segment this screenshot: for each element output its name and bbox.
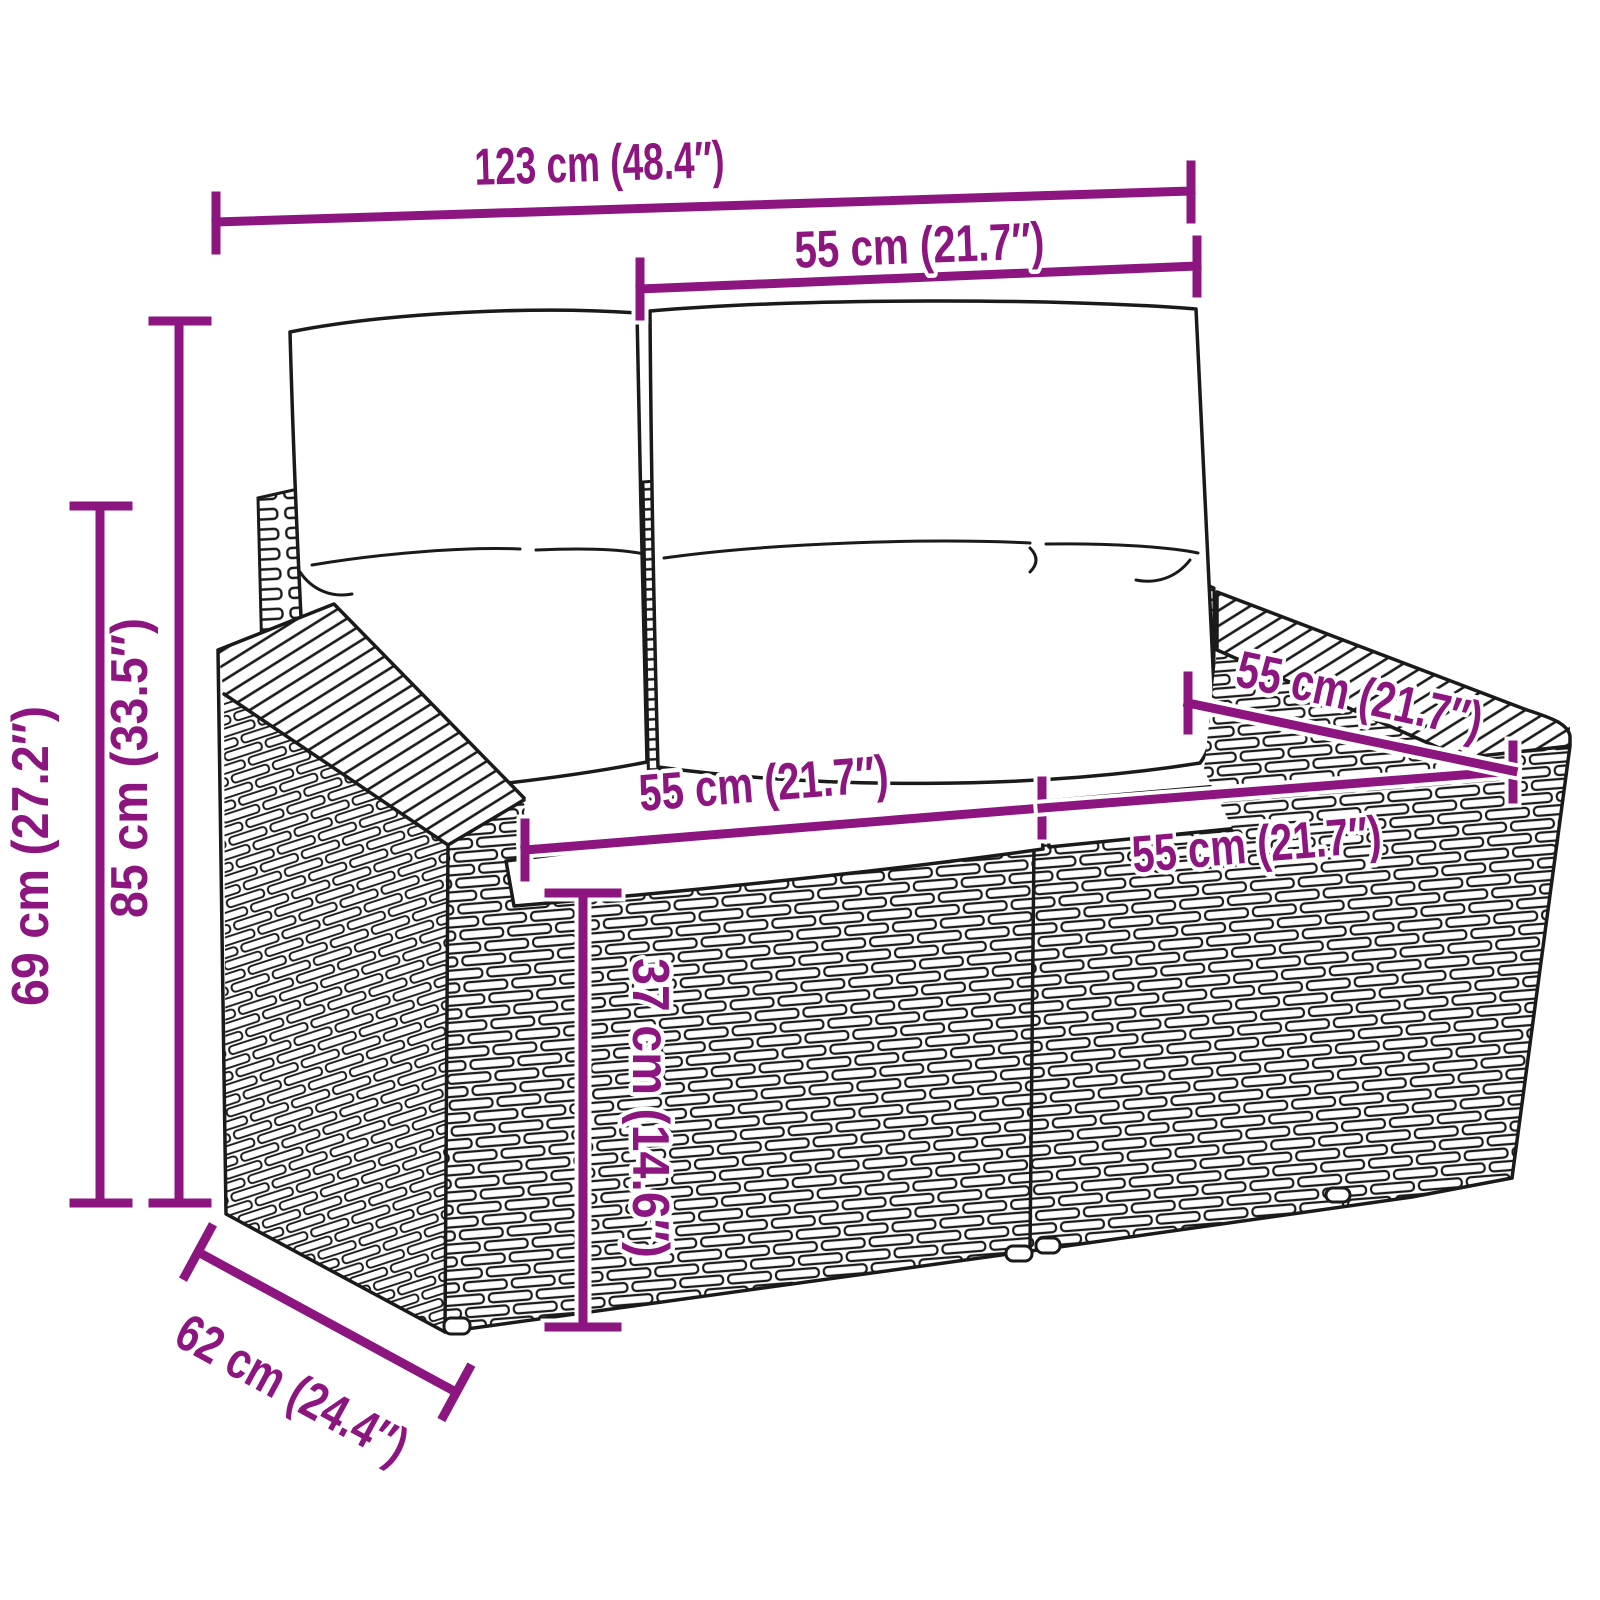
foot (1006, 1246, 1032, 1261)
base-height-label: 37 cm (14.6″) (621, 958, 679, 1258)
diagram-canvas: 123 cm (48.4″) 55 cm (21.7″) 69 cm (27.2… (0, 0, 1600, 1600)
foot (444, 1318, 470, 1334)
armrest-height-label: 69 cm (27.2″) (2, 706, 60, 1006)
dim-overall-width: 123 cm (48.4″) (216, 131, 1191, 250)
overall-depth-label: 62 cm (24.4″) (166, 1303, 418, 1476)
overall-width-label: 123 cm (48.4″) (474, 131, 726, 197)
backrest-section-width-label: 55 cm (21.7″) (793, 212, 1045, 280)
sofa-dimension-diagram: 123 cm (48.4″) 55 cm (21.7″) 69 cm (27.2… (0, 0, 1600, 1600)
foot (1326, 1188, 1350, 1202)
dim-total-height: 85 cm (33.5″) (101, 321, 207, 1203)
foot (1036, 1238, 1060, 1253)
total-height-label: 85 cm (33.5″) (101, 618, 159, 918)
